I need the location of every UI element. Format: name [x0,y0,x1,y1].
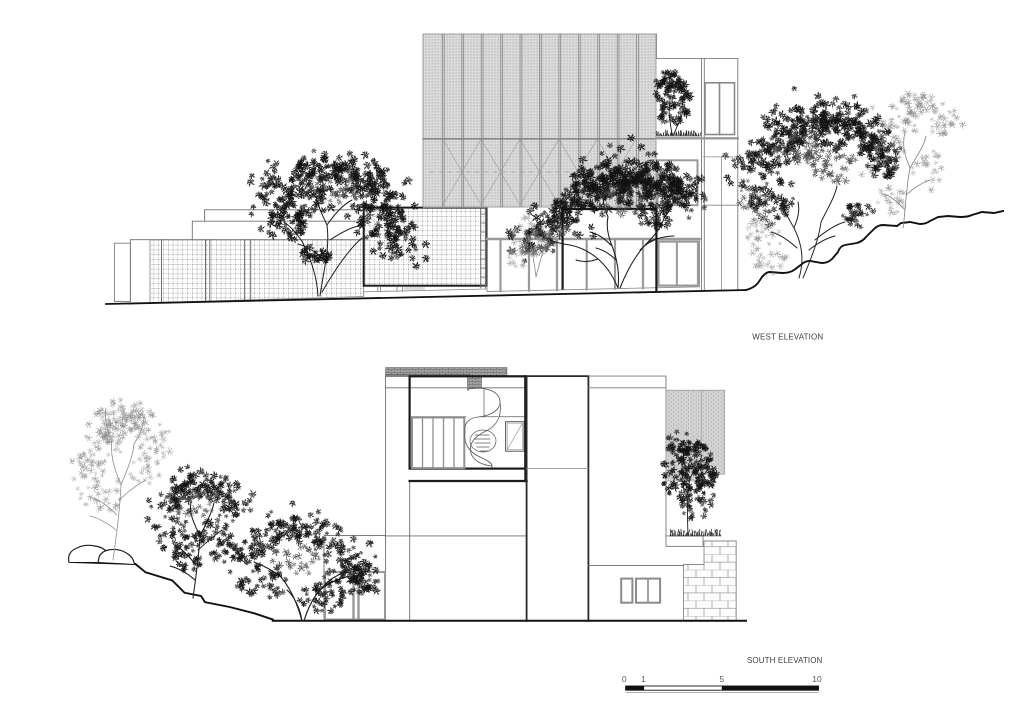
svg-text:0: 0 [622,674,627,684]
svg-text:5: 5 [719,674,724,684]
svg-text:WEST ELEVATION: WEST ELEVATION [752,333,823,342]
svg-text:10: 10 [812,674,822,684]
svg-text:1: 1 [641,674,646,684]
svg-text:SOUTH ELEVATION: SOUTH ELEVATION [747,656,823,665]
